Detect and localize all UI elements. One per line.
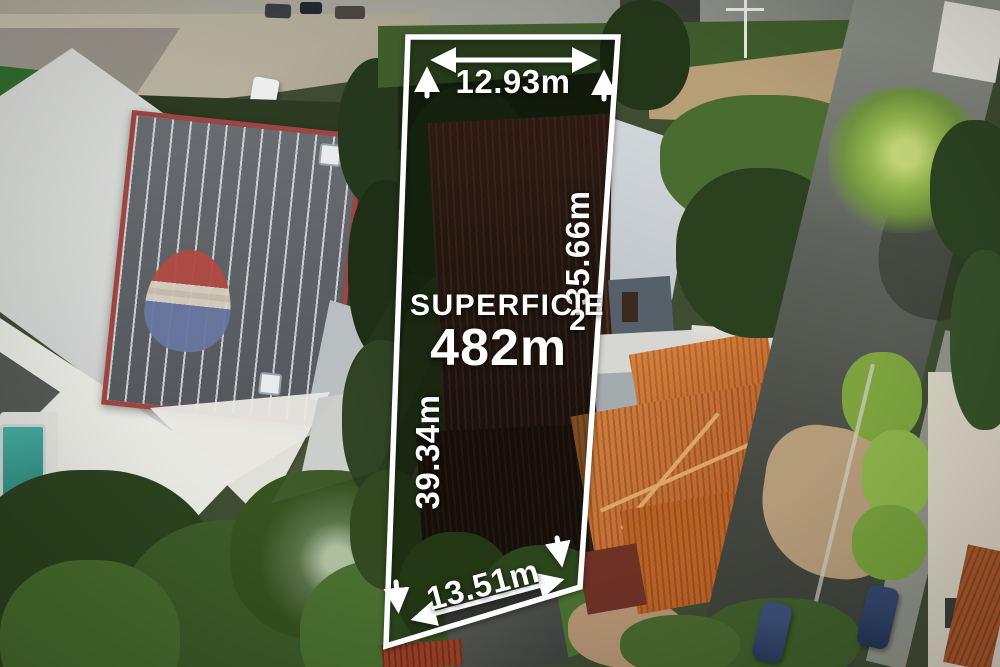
aerial-photo-canvas: 12.93m 35.66m 39.34m 13.51m SUPERFICIE 4… bbox=[0, 0, 1000, 667]
top-measurement-label: 12.93m bbox=[413, 63, 613, 101]
area-value: 482m bbox=[430, 319, 567, 377]
area-exponent: 2 bbox=[569, 304, 587, 337]
area-value-label: 482m2 bbox=[400, 318, 615, 378]
left-measurement-label: 39.34m bbox=[409, 352, 447, 552]
